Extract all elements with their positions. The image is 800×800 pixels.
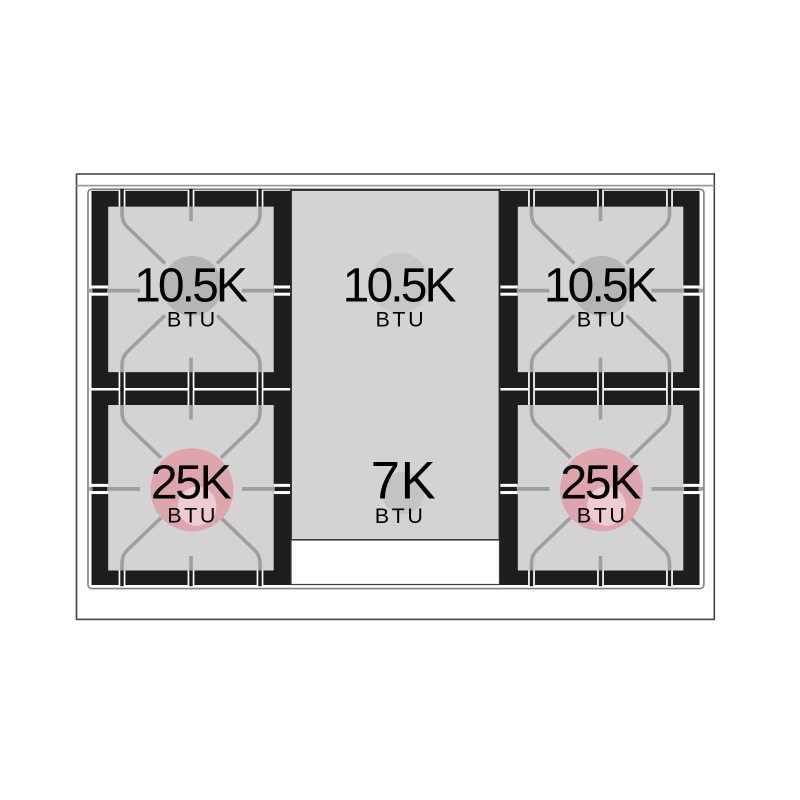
svg-text:BTU: BTU [167, 503, 218, 527]
svg-text:10.5K: 10.5K [134, 259, 248, 312]
svg-text:BTU: BTU [577, 307, 628, 331]
svg-text:BTU: BTU [375, 504, 426, 528]
svg-text:BTU: BTU [375, 308, 426, 332]
svg-text:BTU: BTU [167, 307, 218, 331]
svg-text:25K: 25K [560, 455, 641, 509]
svg-text:10.5K: 10.5K [544, 259, 658, 312]
svg-text:25K: 25K [151, 455, 232, 509]
svg-text:10.5K: 10.5K [343, 260, 457, 313]
svg-text:BTU: BTU [577, 503, 628, 527]
svg-text:7K: 7K [371, 452, 436, 511]
